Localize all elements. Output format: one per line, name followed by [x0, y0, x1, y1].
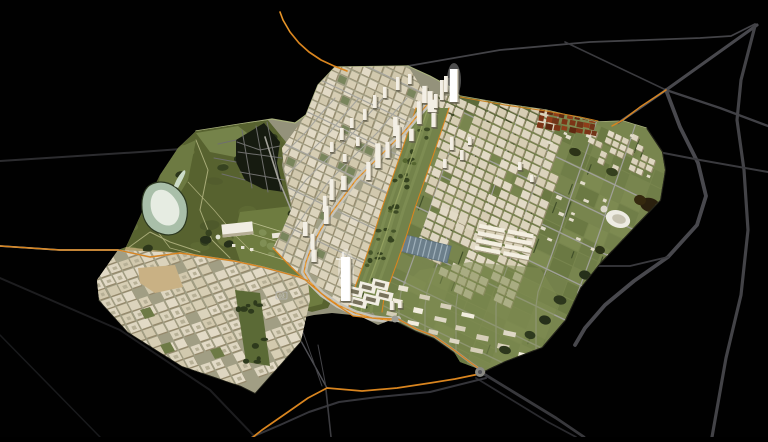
svg-text:03: 03 — [278, 294, 284, 300]
